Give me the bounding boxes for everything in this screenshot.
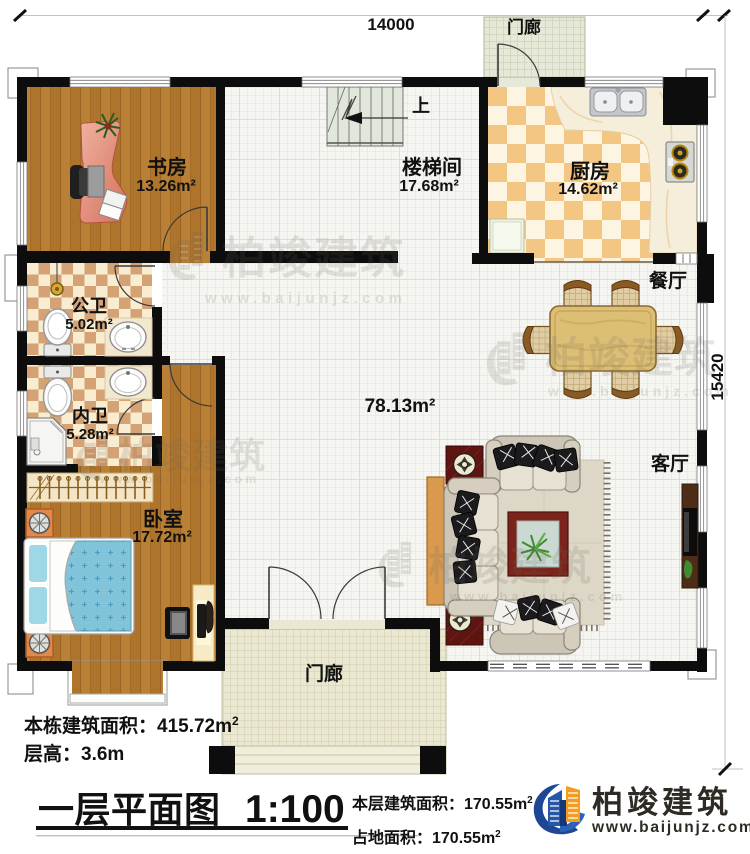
svg-text:门廊: 门廊: [507, 17, 541, 37]
svg-text:www.baijunjz.com: www.baijunjz.com: [449, 589, 626, 604]
svg-text:内卫: 内卫: [72, 405, 108, 426]
svg-text:楼梯间: 楼梯间: [402, 155, 462, 179]
svg-text:5.02m²: 5.02m²: [65, 316, 113, 333]
svg-text:客厅: 客厅: [651, 452, 689, 475]
svg-text:柏竣建筑: 柏竣建筑: [428, 545, 592, 589]
svg-text:17.72m²: 17.72m²: [132, 529, 192, 546]
svg-text:13.26m²: 13.26m²: [136, 178, 196, 195]
svg-text:14000: 14000: [367, 15, 414, 34]
svg-text:厨房: 厨房: [570, 159, 610, 183]
svg-text:www.baijunjz.com: www.baijunjz.com: [204, 290, 406, 307]
svg-text:1:100: 1:100: [245, 788, 345, 831]
svg-text:14.62m²: 14.62m²: [558, 181, 618, 198]
svg-text:www.baijunjz.com: www.baijunjz.com: [547, 383, 733, 399]
svg-text:柏竣建筑: 柏竣建筑: [592, 785, 732, 820]
svg-text:本栋建筑面积：415.72m2: 本栋建筑面积：415.72m2: [24, 714, 239, 737]
svg-text:一层平面图: 一层平面图: [38, 789, 221, 830]
svg-text:78.13m²: 78.13m²: [365, 396, 436, 417]
svg-text:5.28m²: 5.28m²: [66, 426, 114, 443]
svg-text:柏竣建筑: 柏竣建筑: [545, 334, 717, 381]
svg-text:柏竣建筑: 柏竣建筑: [222, 234, 406, 283]
svg-text:层高：3.6m: 层高：3.6m: [24, 742, 124, 765]
svg-text:上: 上: [412, 96, 430, 116]
svg-text:卧室: 卧室: [143, 507, 183, 531]
svg-text:www.baijunjz.com: www.baijunjz.com: [99, 472, 260, 486]
svg-text:书房: 书房: [147, 155, 187, 179]
svg-text:本层建筑面积：170.55m2: 本层建筑面积：170.55m2: [352, 794, 533, 813]
svg-text:公卫: 公卫: [71, 296, 107, 316]
svg-text:餐厅: 餐厅: [649, 269, 687, 292]
svg-text:柏竣建筑: 柏竣建筑: [118, 435, 266, 476]
svg-text:www.baijunjz.com: www.baijunjz.com: [591, 819, 750, 836]
svg-text:占地面积：170.55m2: 占地面积：170.55m2: [352, 828, 501, 847]
svg-text:门廊: 门廊: [305, 662, 343, 685]
svg-text:17.68m²: 17.68m²: [399, 178, 459, 195]
